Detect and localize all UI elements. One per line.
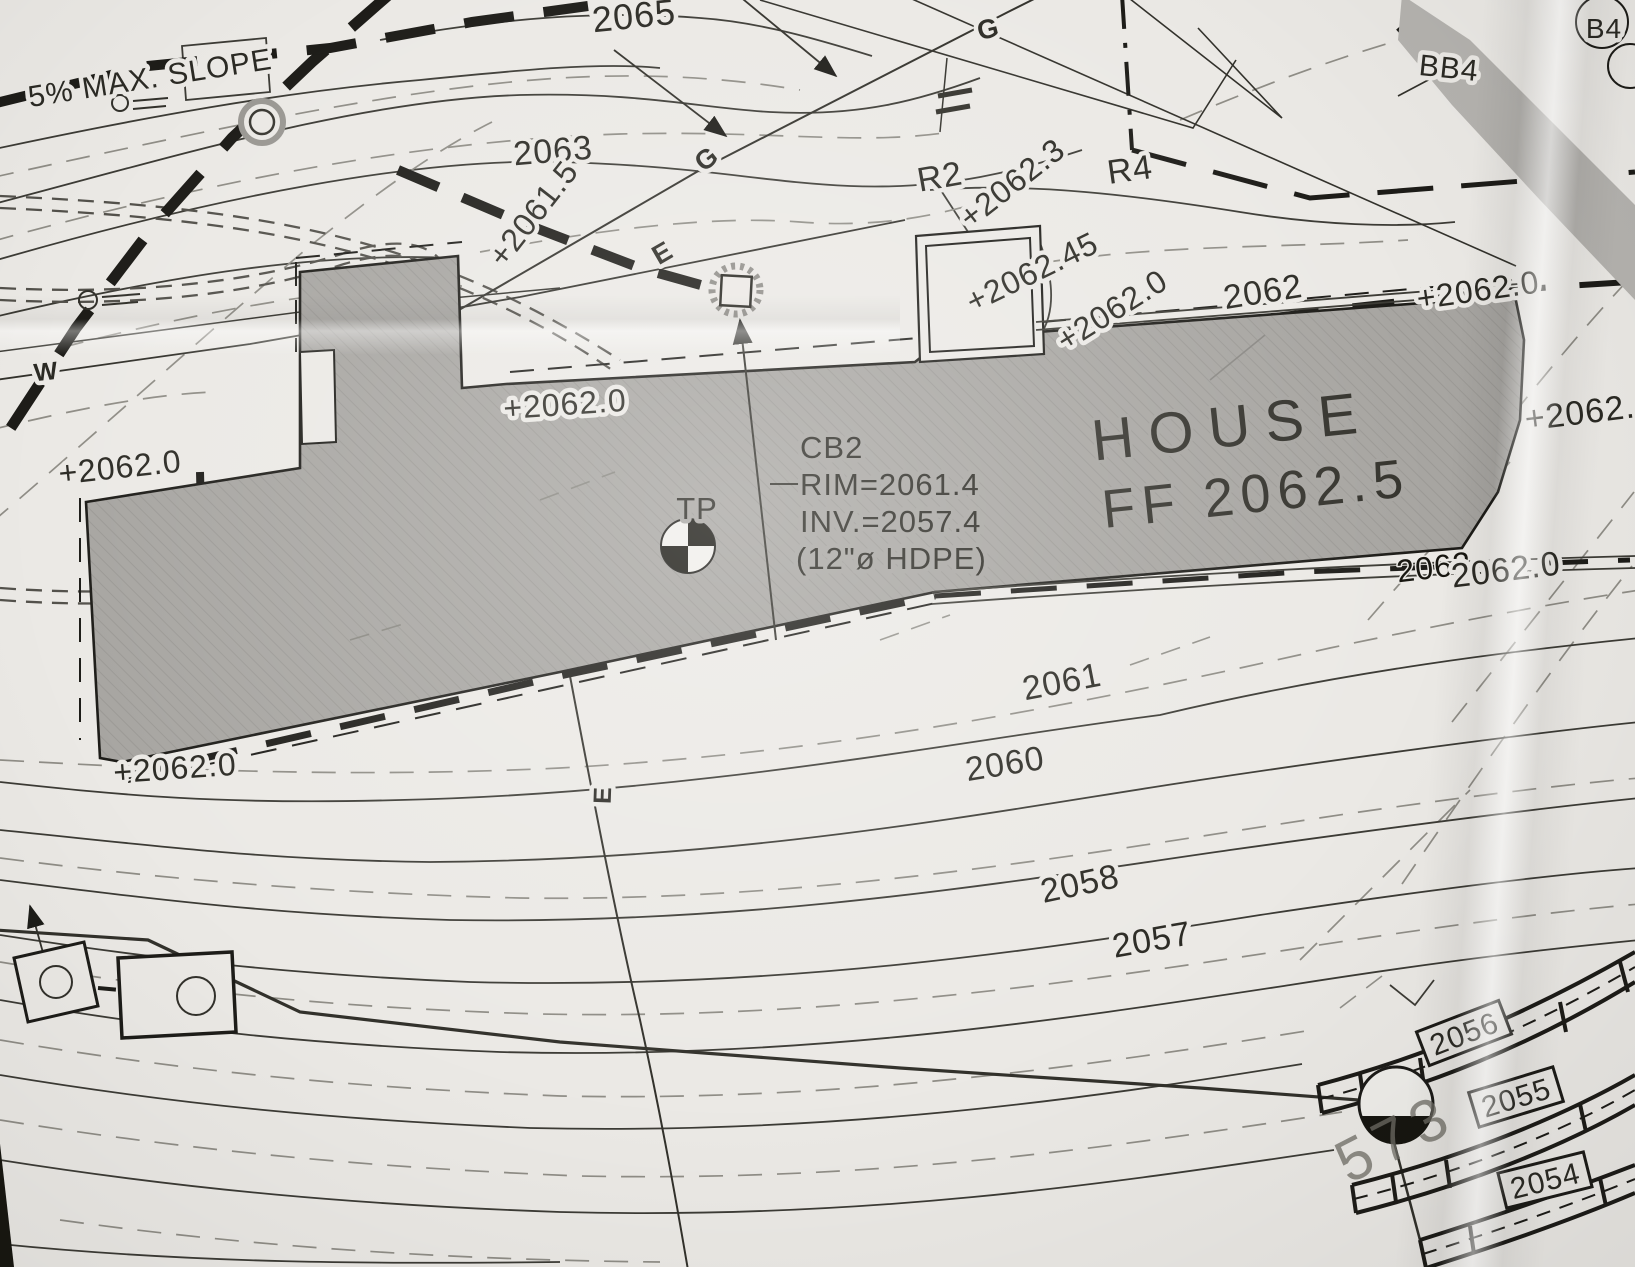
electric-service-marker: E	[589, 786, 618, 805]
existing-contour	[1048, 240, 1408, 262]
test-pit-label: TP	[676, 491, 718, 526]
utility-box-2	[98, 952, 236, 1038]
cb2-pipe-label: (12"ø HDPE)	[796, 541, 987, 576]
existing-contour	[0, 1112, 1342, 1177]
contour-line	[0, 78, 980, 205]
zigzag-line	[760, 0, 1236, 128]
tree-tag-circle	[1608, 44, 1635, 88]
contour-line-2060	[0, 722, 1635, 862]
check-mark-line	[1390, 980, 1434, 1005]
gravel-band-shape	[1398, 0, 1635, 300]
spot-elevation-label: +2062.	[1523, 387, 1635, 438]
scratch-line	[880, 615, 950, 640]
contour-line-2055	[0, 1150, 1334, 1213]
site-plan-photo: 5% MAX. SLOPE 2065 2063 +2061.5 G G E R2…	[0, 0, 1635, 1267]
existing-contour	[1340, 976, 1382, 1008]
site-plan-svg: 5% MAX. SLOPE 2065 2063 +2061.5 G G E R2…	[0, 0, 1635, 1267]
zigzag-line	[1125, 0, 1282, 118]
small-valve-circle	[79, 291, 97, 309]
contour-line	[0, 1244, 560, 1263]
cb2-name-label: CB2	[800, 430, 863, 465]
cb2-inv-label: INV.=2057.4	[800, 504, 981, 539]
boundary-dashdot	[1122, 0, 1132, 150]
wall-rung	[1392, 1174, 1396, 1202]
contour-label-2060: 2060	[963, 739, 1048, 789]
electric-line-marker: E	[647, 235, 678, 270]
existing-contour	[0, 778, 1635, 898]
contour-label-2058: 2058	[1037, 857, 1123, 911]
wall-rung	[1470, 1226, 1474, 1254]
gas-line-marker: G	[689, 140, 725, 177]
existing-contour	[1300, 790, 1470, 960]
existing-contour	[0, 132, 950, 242]
valve-dashes	[133, 98, 168, 109]
gravel-band	[1398, 0, 1635, 300]
utility-box-outline	[14, 942, 98, 1022]
box-link-dash	[98, 988, 120, 990]
wall-rung	[1600, 1178, 1606, 1206]
wall-rung	[1560, 1002, 1566, 1032]
riser-tick	[936, 106, 970, 112]
contour-line-2057	[0, 940, 1635, 1053]
existing-contour	[1452, 492, 1634, 722]
contour-line-2059	[0, 798, 1635, 920]
ring-symbol	[241, 101, 283, 143]
existing-contour	[0, 904, 1635, 1015]
cb2-rim-label: RIM=2061.4	[800, 467, 980, 502]
contour-label-2061: 2061	[1019, 656, 1104, 708]
r4-label: R4	[1105, 148, 1155, 192]
spot-elevation-label: +2062.3	[952, 131, 1072, 235]
wall-rung	[1446, 1160, 1450, 1188]
scratch-line	[1130, 637, 1210, 665]
spot-elevation-label: +2062.0	[57, 443, 184, 492]
house-notch	[300, 350, 336, 444]
water-line-marker: W	[33, 357, 60, 387]
flow-arrow	[614, 50, 726, 136]
b4-tag-label: B4	[1586, 13, 1622, 44]
electric-service-line	[565, 650, 688, 1267]
utility-box-1	[14, 942, 98, 1022]
spot-elevation-label: +2062.0	[112, 746, 238, 791]
r2-label: R2	[914, 154, 965, 199]
test-pit-symbol	[661, 519, 715, 573]
bb4-label: BB4	[1417, 49, 1480, 88]
wall-end	[1318, 1085, 1322, 1113]
contour-label-2065: 2065	[590, 0, 678, 40]
existing-contour	[1402, 566, 1632, 884]
flow-arrow	[738, 0, 836, 76]
existing-contour	[0, 1030, 1312, 1097]
existing-contour	[1180, 40, 1400, 120]
contour-label-2057: 2057	[1109, 914, 1194, 965]
